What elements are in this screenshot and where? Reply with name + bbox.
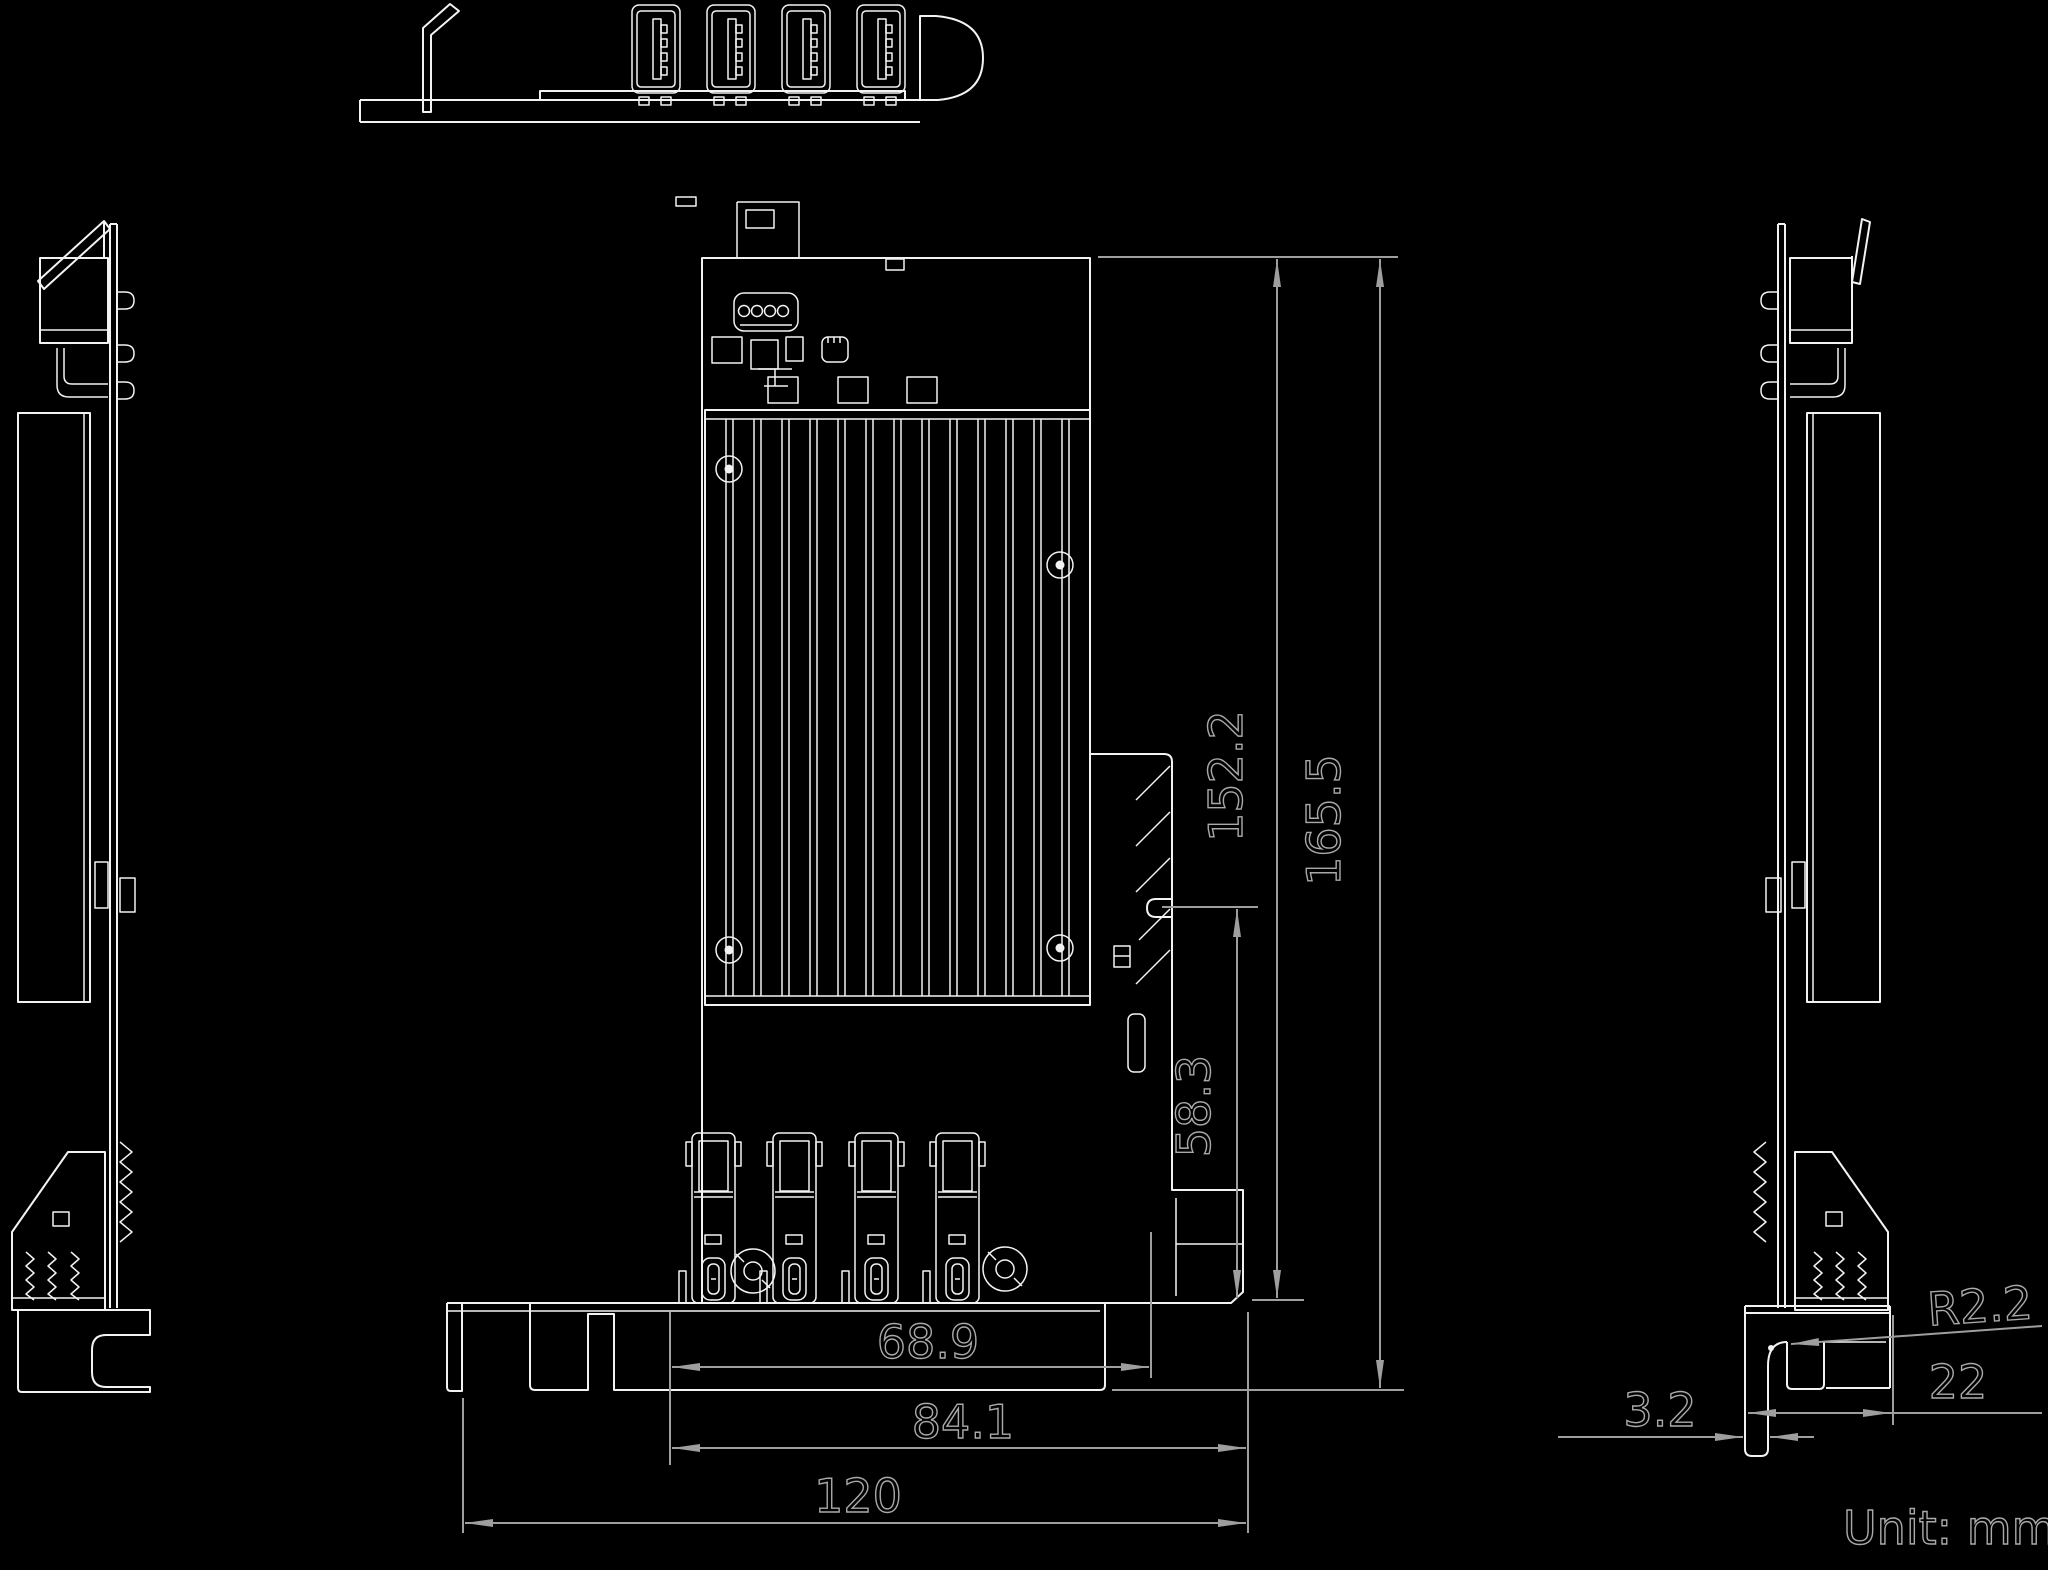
unit-note: Unit: mm — [1843, 1501, 2048, 1555]
solder-hook — [117, 345, 134, 362]
dimension-annotations: 152.2 165.5 58.3 68.9 84.1 120 R2.2 22 3… — [463, 257, 2048, 1555]
bracket-foot-plate — [1745, 1306, 1890, 1456]
left-side-view — [12, 221, 150, 1392]
dim-label-pcb-width: 84.1 — [912, 1395, 1014, 1449]
contact-spring — [71, 1252, 79, 1300]
pcb-edge — [110, 224, 117, 1308]
front-view — [447, 197, 1243, 1391]
contact-spring — [48, 1252, 56, 1300]
emi-spring — [120, 1142, 132, 1242]
contact-spring — [26, 1252, 34, 1300]
dim-label-overall-height: 165.5 — [1297, 754, 1351, 886]
bracket-left-tab — [423, 4, 459, 112]
contact-spring — [1858, 1252, 1866, 1300]
clip — [95, 862, 108, 908]
io-components — [676, 197, 1145, 1072]
bracket-foot-front — [447, 1303, 462, 1391]
emi-spring — [1754, 1142, 1766, 1242]
mounting-holes — [731, 1247, 1027, 1293]
dim-label-foot-length: 22 — [1929, 1355, 1988, 1409]
contact-spring — [1836, 1252, 1844, 1300]
bracket-top-tab — [1852, 219, 1870, 343]
bracket-foot-plate — [18, 1310, 150, 1392]
dim-label-foot-offset: 3.2 — [1623, 1383, 1696, 1437]
solder-hook — [117, 382, 134, 399]
clip — [120, 878, 135, 912]
solder-hook — [1761, 292, 1778, 309]
bracket-right-end — [920, 16, 983, 100]
contact-spring — [1814, 1252, 1822, 1300]
dim-label-overall-width: 120 — [814, 1469, 902, 1523]
solder-hook — [117, 292, 134, 309]
dim-label-radius: R2.2 — [1926, 1275, 2035, 1336]
dim-label-pcb-height: 152.2 — [1199, 710, 1253, 842]
bracket-foot-body — [12, 1152, 105, 1310]
pcie-edge-connector — [530, 1303, 1105, 1390]
heatsink-side — [1807, 413, 1880, 1002]
pcb-edge — [1778, 224, 1785, 1308]
bracket-foot-body — [1795, 1152, 1888, 1310]
hatch-lines — [1136, 766, 1170, 984]
heatsink — [705, 410, 1090, 1005]
heatsink-side — [18, 413, 90, 1002]
dim-label-port-span: 68.9 — [877, 1315, 979, 1369]
pcie-card-mechanical-drawing: 152.2 165.5 58.3 68.9 84.1 120 R2.2 22 3… — [0, 0, 2048, 1570]
usb-port-front-3 — [842, 1133, 904, 1303]
solder-hook — [1761, 382, 1778, 399]
clip — [1792, 862, 1805, 908]
solder-hook — [1761, 345, 1778, 362]
right-side-view — [1745, 219, 1890, 1456]
bracket-strip — [360, 100, 920, 122]
usb-port-front-4 — [923, 1133, 985, 1303]
heatsink-fins — [726, 419, 1069, 996]
usb-port-front-2 — [760, 1133, 822, 1303]
radius-center-mark — [1768, 1345, 1774, 1351]
drawing-canvas: 152.2 165.5 58.3 68.9 84.1 120 R2.2 22 3… — [0, 0, 2048, 1570]
dim-label-connector-zone: 58.3 — [1167, 1055, 1221, 1157]
top-view — [360, 4, 983, 122]
bracket-top-tab — [38, 221, 110, 289]
